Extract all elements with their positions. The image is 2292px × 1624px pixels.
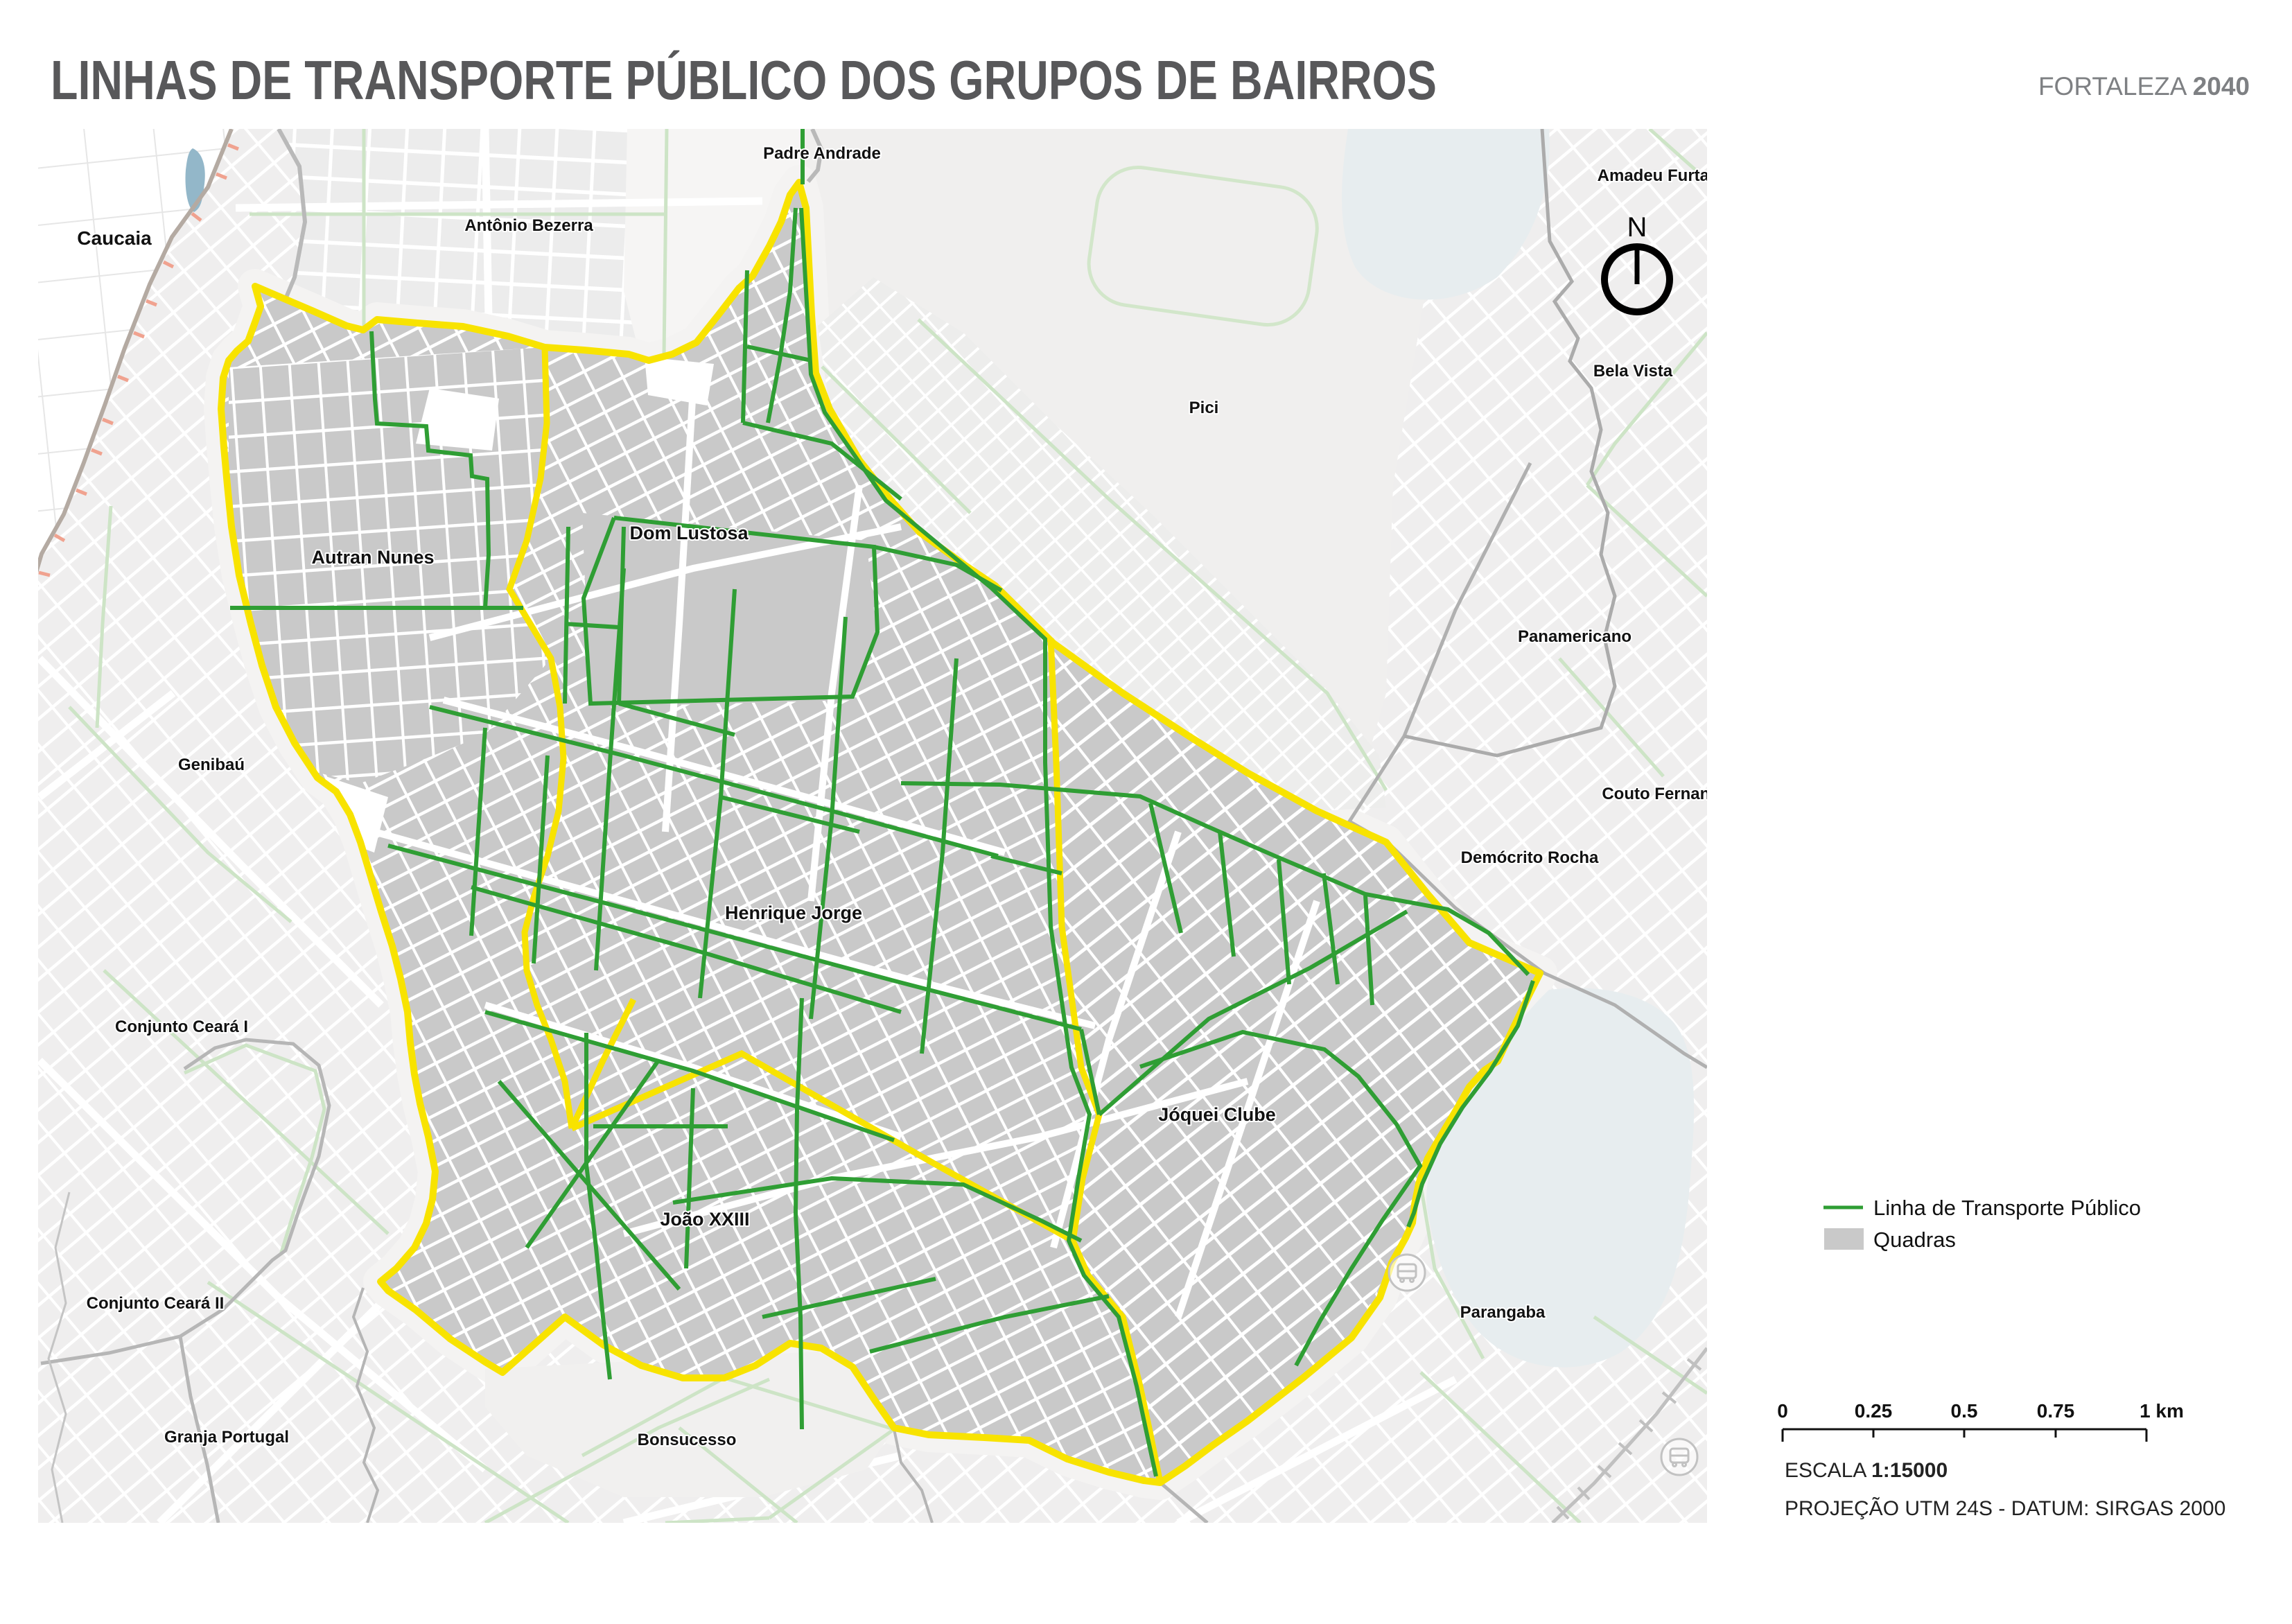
svg-text:Pici: Pici [1189, 399, 1219, 417]
svg-text:Dom Lustosa: Dom Lustosa [629, 523, 749, 543]
svg-text:FORTALEZA 2040: FORTALEZA 2040 [2038, 72, 2250, 101]
svg-text:Antônio Bezerra: Antônio Bezerra [464, 216, 593, 235]
svg-text:ESCALA 1:15000: ESCALA 1:15000 [1785, 1459, 1948, 1482]
svg-text:1 km: 1 km [2140, 1400, 2184, 1422]
svg-text:Parangaba: Parangaba [1460, 1303, 1546, 1322]
svg-text:João XXIII: João XXIII [660, 1209, 749, 1230]
svg-text:N: N [1627, 212, 1647, 243]
svg-text:Jóquei Clube: Jóquei Clube [1158, 1104, 1276, 1125]
svg-text:LINHAS DE TRANSPORTE PÚBLICO D: LINHAS DE TRANSPORTE PÚBLICO DOS GRUPOS … [51, 49, 1437, 111]
svg-text:Padre Andrade: Padre Andrade [763, 144, 881, 163]
svg-text:Genibaú: Genibaú [178, 756, 245, 774]
svg-text:Linha de Transporte Público: Linha de Transporte Público [1873, 1196, 2141, 1220]
svg-text:0.5: 0.5 [1951, 1400, 1978, 1422]
svg-text:Granja Portugal: Granja Portugal [164, 1428, 289, 1447]
svg-text:Bela Vista: Bela Vista [1593, 362, 1673, 381]
svg-text:0.75: 0.75 [2037, 1400, 2075, 1422]
svg-text:0: 0 [1777, 1400, 1788, 1422]
svg-text:Henrique Jorge: Henrique Jorge [725, 902, 862, 923]
svg-text:Panamericano: Panamericano [1518, 627, 1631, 646]
svg-text:0.25: 0.25 [1855, 1400, 1893, 1422]
svg-text:Autran Nunes: Autran Nunes [311, 547, 434, 568]
svg-text:Bonsucesso: Bonsucesso [638, 1431, 737, 1449]
svg-text:Conjunto Ceará I: Conjunto Ceará I [115, 1018, 248, 1036]
svg-text:Conjunto Ceará II: Conjunto Ceará II [87, 1294, 225, 1313]
svg-text:Caucaia: Caucaia [77, 227, 152, 249]
svg-text:PROJEÇÃO UTM 24S - DATUM: SIRG: PROJEÇÃO UTM 24S - DATUM: SIRGAS 2000 [1785, 1496, 2225, 1520]
svg-text:Demócrito Rocha: Demócrito Rocha [1461, 848, 1599, 867]
svg-text:Quadras: Quadras [1873, 1228, 1956, 1252]
